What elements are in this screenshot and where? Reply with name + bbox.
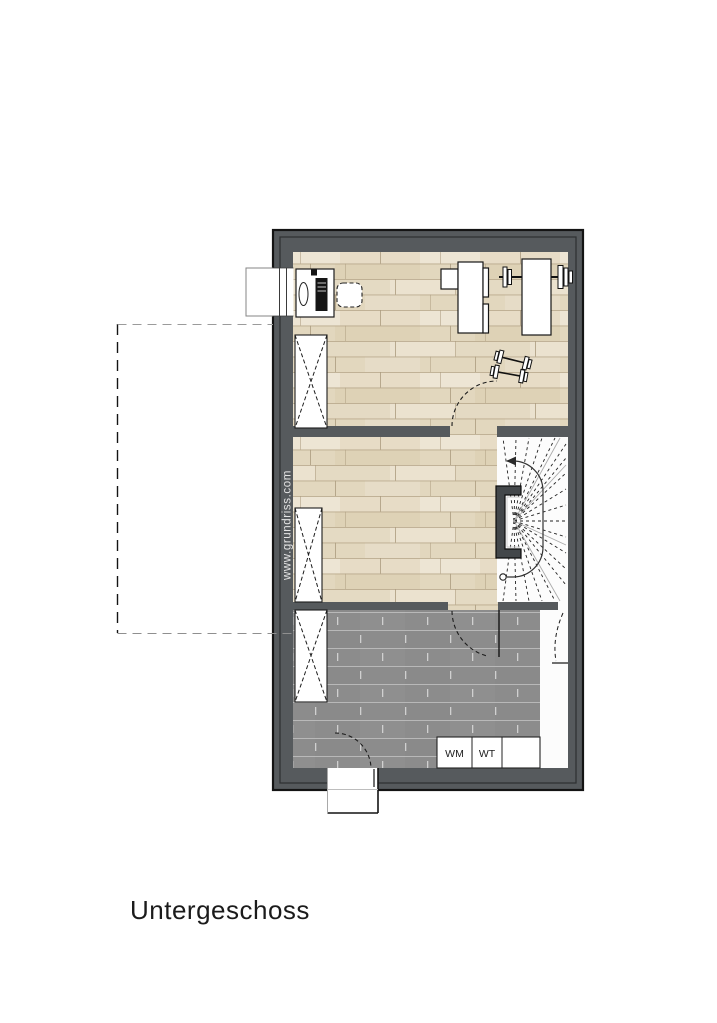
lightwell-box [246, 268, 273, 316]
floor-plan-drawing: WM WT www.grundriss.com Untergeschoss [0, 0, 717, 1023]
wall-a-right [497, 426, 568, 437]
floor-plan-page: WM WT www.grundriss.com Untergeschoss [0, 0, 717, 1023]
exterior-landing [328, 768, 379, 813]
shaft-x-symbol-bathroom [295, 610, 327, 702]
appliance-counter: WM WT [437, 737, 540, 768]
shaft-x-symbol-middle [295, 508, 322, 602]
window-lightwell [246, 268, 294, 316]
stair-exit-opening [558, 602, 568, 610]
stair-walkline-start [500, 574, 506, 580]
washing-machine-label: WM [445, 748, 464, 760]
hall-floor [293, 437, 497, 602]
site-boundary-dashed [118, 324, 294, 634]
page-title: Untergeschoss [130, 895, 310, 925]
monitor-icon [299, 283, 308, 306]
wall-b-right [498, 602, 558, 610]
dryer-label: WT [479, 748, 496, 760]
shaft-x-symbol-top [295, 335, 327, 428]
wall-b-left [293, 602, 448, 610]
understair-floor [540, 610, 568, 768]
shaft-symbols [295, 335, 327, 702]
door-opening-floor-top [450, 426, 497, 437]
door-opening-floor-bottom [448, 602, 498, 610]
window-opening [273, 268, 294, 316]
office-chair [337, 283, 362, 307]
watermark-text: www.grundriss.com [282, 470, 294, 581]
desk [296, 269, 334, 317]
